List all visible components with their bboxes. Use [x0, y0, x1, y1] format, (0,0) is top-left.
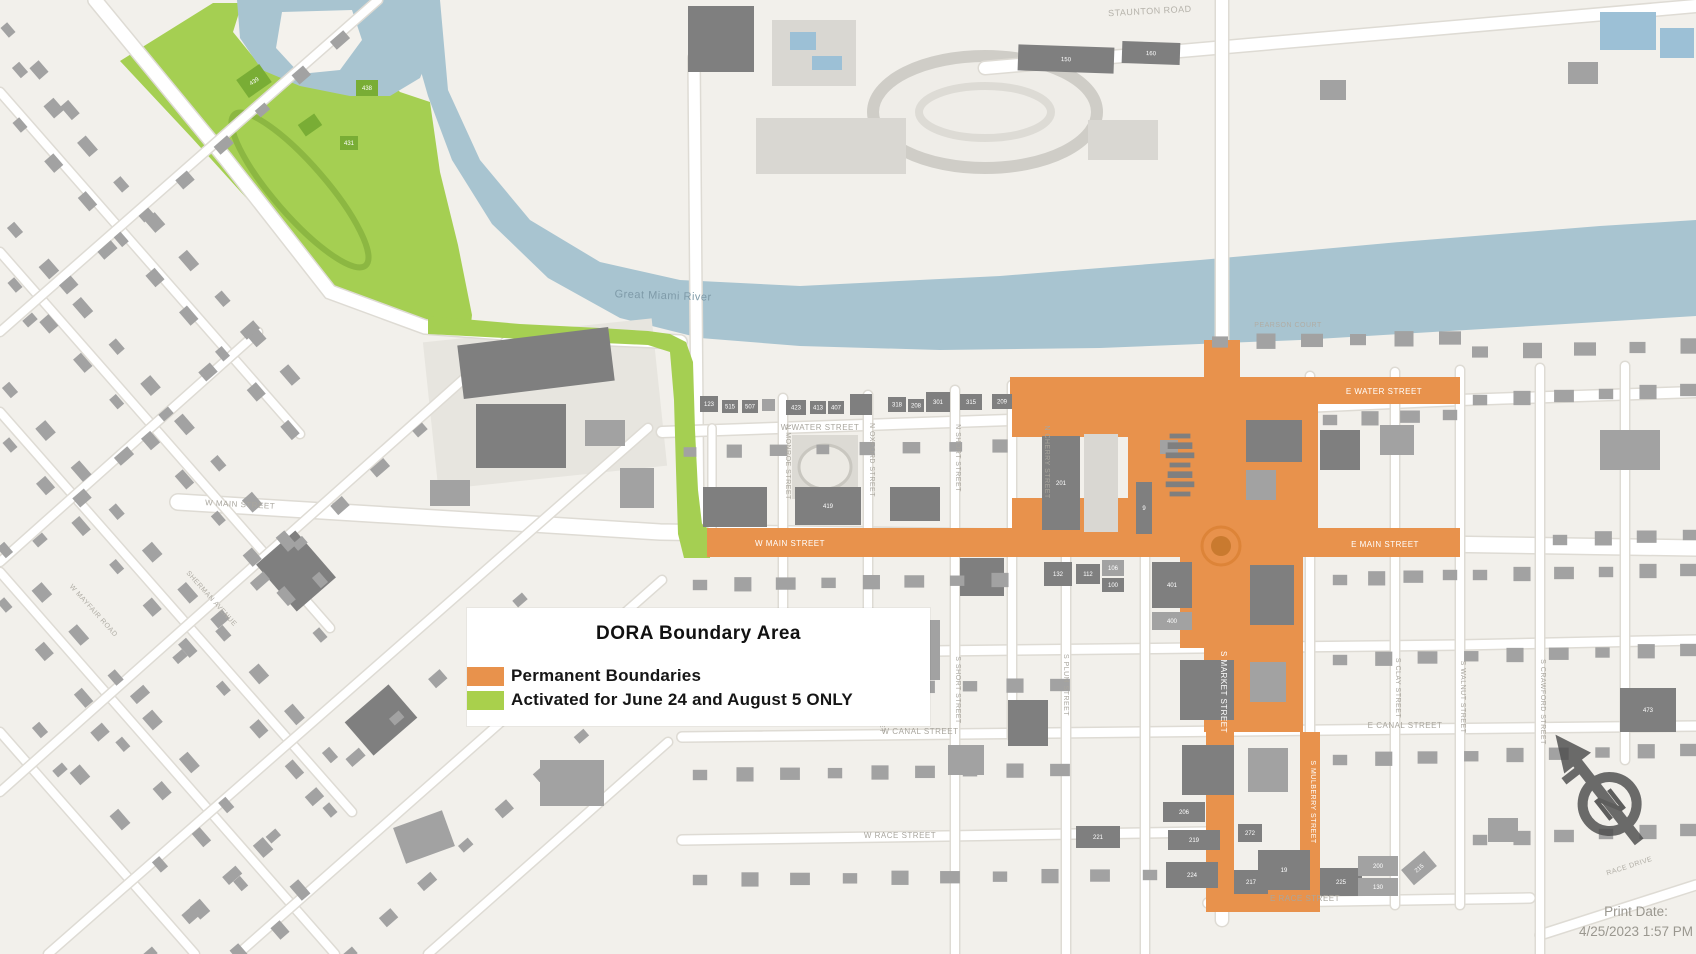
street-label: STAUNTON ROAD: [1108, 4, 1192, 18]
map-building: [113, 176, 129, 193]
map-building: [816, 445, 829, 455]
map-building: [1554, 567, 1574, 579]
map-building: [2, 437, 17, 452]
map-building: [940, 871, 960, 883]
street-label: S WALNUT STREET: [1459, 661, 1466, 734]
map-building: [1250, 662, 1286, 702]
north-arrow: N: [1534, 718, 1660, 858]
map-building: [772, 20, 856, 86]
map-building: [1350, 334, 1366, 345]
map-stage: 1501604394384314191235155074234134073182…: [0, 0, 1696, 954]
map-building: [1506, 748, 1523, 762]
map-building: [963, 681, 977, 691]
building-number-label: 507: [745, 405, 756, 411]
map-building: [780, 768, 800, 780]
map-building: [1553, 535, 1567, 545]
map-building: [476, 404, 566, 468]
map-building: [379, 908, 398, 927]
map-building: [1637, 530, 1657, 542]
map-building: [1638, 644, 1655, 658]
map-building: [871, 765, 888, 779]
map-building: [1600, 430, 1660, 470]
map-building: [216, 681, 231, 696]
street-label: S CLAY STREET: [1394, 658, 1401, 719]
map-building: [991, 573, 1008, 587]
map-building: [1084, 434, 1118, 532]
map-building: [428, 669, 447, 688]
map-building: [776, 577, 796, 589]
building-number-label: 219: [1189, 838, 1200, 844]
map-building: [1681, 338, 1696, 353]
map-road: [0, 572, 335, 954]
map-building: [52, 762, 67, 777]
map-building: [1246, 470, 1276, 500]
map-building: [1630, 342, 1646, 353]
map-building: [1680, 824, 1696, 836]
map-building: [904, 575, 924, 587]
map-building: [1473, 395, 1487, 405]
map-building: [1523, 343, 1542, 358]
map-building: [495, 799, 514, 818]
street-label: S MARKET STREET: [1219, 651, 1228, 733]
map-building: [1443, 410, 1457, 420]
map-building: [1395, 331, 1414, 346]
map-building: [43, 98, 64, 119]
map-building: [890, 487, 940, 521]
map-building: [863, 575, 880, 589]
map-building: [1639, 564, 1656, 578]
print-date-label: Print Date:: [1576, 902, 1696, 922]
map-building: [1680, 644, 1696, 656]
map-building: [32, 722, 48, 739]
map-building: [417, 872, 437, 891]
building-number-label: 301: [933, 400, 944, 406]
map-building: [1574, 342, 1596, 355]
map-building: [115, 737, 130, 752]
map-building: [142, 710, 163, 731]
map-building: [1361, 411, 1378, 425]
map-building: [1568, 62, 1598, 84]
building-number-label: 407: [831, 406, 842, 412]
map-building: [60, 100, 79, 120]
map-building: [1168, 442, 1193, 449]
building-number-label: 413: [813, 406, 824, 412]
map-building: [210, 455, 226, 472]
map-building: [7, 222, 23, 239]
map-building: [72, 297, 93, 319]
map-building: [266, 828, 281, 843]
map-building: [1443, 570, 1457, 580]
map-building: [891, 871, 908, 885]
map-building: [1660, 28, 1694, 58]
map-building: [992, 439, 1007, 452]
map-building: [1182, 745, 1234, 795]
street-label: E RACE STREET: [1270, 894, 1340, 903]
map-building: [1050, 764, 1070, 776]
map-building: [1513, 391, 1530, 405]
map-building: [130, 685, 150, 704]
map-building: [1008, 700, 1048, 746]
street-label: E CANAL STREET: [1368, 721, 1443, 730]
map-building: [1368, 571, 1385, 585]
building-number-label: 272: [1245, 831, 1256, 837]
map-building: [1473, 835, 1487, 845]
map-building: [1006, 678, 1023, 692]
building-number-label: 473: [1643, 708, 1654, 714]
map-building: [756, 118, 906, 174]
street-label: N MONROE STREET: [784, 424, 791, 500]
map-building: [1680, 384, 1696, 396]
building-number-label: 160: [1146, 51, 1157, 57]
map-building: [322, 747, 338, 764]
street-label: E MAIN STREET: [1351, 540, 1419, 549]
map-building: [1006, 763, 1023, 777]
map-building: [850, 394, 872, 415]
map-building: [1301, 334, 1323, 347]
map-building: [0, 597, 13, 612]
map-building: [68, 624, 89, 646]
map-building: [458, 838, 473, 853]
map-building: [109, 503, 125, 520]
map-building: [950, 576, 964, 586]
map-building: [963, 766, 977, 776]
building-number-label: 419: [823, 504, 834, 510]
legend-item-label: Permanent Boundaries: [511, 666, 701, 686]
map-building: [12, 62, 28, 79]
print-date: Print Date: 4/25/2023 1:57 PM: [1576, 902, 1696, 942]
map-building: [345, 684, 418, 755]
street-label: N CHERRY STREET: [1043, 425, 1050, 499]
map-building: [688, 6, 754, 72]
map-building: [35, 420, 56, 441]
map-building: [0, 22, 15, 37]
legend-title: DORA Boundary Area: [467, 623, 930, 645]
map-building: [1599, 567, 1613, 577]
building-number-label: 221: [1093, 835, 1104, 841]
roundabout-center: [1211, 536, 1231, 556]
building-number-label: 132: [1053, 572, 1064, 578]
map-building: [1320, 80, 1346, 100]
building-number-label: 209: [997, 400, 1008, 406]
map-building: [1333, 655, 1347, 665]
building-number-label: 400: [1167, 619, 1178, 625]
map-building: [174, 414, 195, 436]
map-building: [214, 290, 230, 307]
building-number-label: 431: [344, 141, 355, 147]
map-canvas: 1501604394384314191235155074234134073182…: [0, 0, 1696, 954]
map-building: [1170, 463, 1191, 468]
map-building: [142, 542, 163, 563]
building-number-label: 106: [1108, 566, 1119, 572]
map-building: [342, 946, 357, 954]
map-building: [142, 946, 157, 954]
building-number-label: 100: [1108, 583, 1119, 589]
map-building: [1680, 564, 1696, 576]
map-building: [693, 770, 707, 780]
map-building: [1166, 452, 1195, 458]
map-building: [77, 135, 98, 157]
map-building: [430, 480, 470, 506]
map-building: [1599, 389, 1613, 399]
building-number-label: 150: [1061, 57, 1072, 63]
print-date-value: 4/25/2023 1:57 PM: [1576, 922, 1696, 942]
legend-item-label: Activated for June 24 and August 5 ONLY: [511, 690, 853, 710]
map-building: [1513, 831, 1530, 845]
building-number-label: 130: [1373, 885, 1384, 891]
building-number-label: 201: [1056, 481, 1067, 487]
map-building: [1248, 748, 1288, 792]
map-building: [305, 787, 324, 806]
map-building: [29, 60, 48, 79]
map-building: [1513, 567, 1530, 581]
map-building: [1418, 751, 1438, 763]
map-building: [993, 871, 1007, 881]
permanent-boundary-swatch: [467, 667, 504, 686]
map-building: [790, 873, 810, 885]
map-building: [90, 723, 109, 742]
map-building: [1595, 747, 1609, 757]
street-label: S PLUM STREET: [1062, 654, 1069, 716]
map-building: [1506, 648, 1523, 662]
map-building: [1638, 744, 1655, 758]
map-building: [322, 802, 337, 817]
map-building: [540, 760, 604, 806]
map-building: [32, 582, 53, 603]
map-building: [1595, 647, 1609, 657]
street-label: S SHORT STREET: [954, 656, 961, 724]
street-label: W CANAL STREET: [882, 727, 959, 736]
map-building: [727, 445, 742, 458]
building-number-label: 225: [1336, 880, 1347, 886]
map-building: [1683, 530, 1696, 540]
map-building: [110, 809, 131, 831]
map-building: [1639, 385, 1656, 399]
map-building: [1320, 430, 1360, 470]
map-building: [585, 420, 625, 446]
map-building: [1375, 652, 1392, 666]
map-building: [1170, 492, 1191, 497]
legend-box: DORA Boundary Area Permanent Boundaries …: [467, 608, 930, 726]
map-road: [0, 332, 258, 562]
building-number-label: 423: [791, 406, 802, 412]
map-building: [179, 752, 200, 774]
map-building: [574, 729, 589, 744]
map-building: [762, 399, 775, 411]
building-number-label: 515: [725, 405, 736, 411]
map-building: [693, 875, 707, 885]
map-building: [915, 766, 935, 778]
map-building: [1090, 869, 1110, 881]
map-building: [140, 375, 161, 396]
map-building: [1212, 336, 1228, 347]
building-number-label: 19: [1281, 868, 1288, 874]
map-building: [903, 442, 921, 453]
map-building: [812, 56, 842, 70]
map-building: [1549, 648, 1569, 660]
building-number-label: 200: [1373, 864, 1384, 870]
street-label: W WATER STREET: [781, 423, 860, 432]
map-building: [1323, 415, 1337, 425]
legend-item-permanent: Permanent Boundaries: [467, 664, 930, 688]
building-number-label: 318: [892, 403, 903, 409]
map-building: [249, 663, 270, 684]
street-label: N SHORT STREET: [954, 424, 961, 492]
street-label: S CRAWFORD STREET: [1539, 659, 1546, 745]
street-label: E WATER STREET: [1346, 387, 1422, 396]
building-number-label: 123: [704, 402, 715, 408]
street-label: N OXFORD STREET: [868, 423, 875, 497]
permanent-boundary-waterfront-parcels: [1012, 404, 1128, 437]
map-building: [1473, 570, 1487, 580]
map-building: [1439, 331, 1461, 344]
map-building: [1257, 334, 1276, 349]
map-building: [153, 781, 172, 800]
map-building: [1170, 434, 1191, 439]
building-number-label: 438: [362, 86, 373, 92]
building-number-label: 224: [1187, 873, 1198, 879]
building-number-label: 112: [1083, 572, 1093, 578]
map-building: [821, 578, 835, 588]
street-label: W MAIN STREET: [755, 539, 825, 548]
map-building: [109, 338, 125, 355]
map-building: [2, 382, 18, 399]
map-building: [736, 767, 753, 781]
map-building: [1250, 565, 1294, 625]
map-building: [693, 580, 707, 590]
street-label: PEARSON COURT: [1254, 322, 1322, 329]
map-building: [1333, 755, 1347, 765]
map-building: [1403, 570, 1423, 582]
map-building: [1472, 346, 1488, 357]
map-building: [1168, 471, 1193, 478]
map-building: [734, 577, 751, 591]
map-building: [1554, 830, 1574, 842]
map-building: [70, 764, 91, 785]
map-building: [703, 487, 767, 527]
map-building: [109, 559, 124, 574]
activated-boundary-swatch: [467, 691, 504, 710]
map-building: [684, 447, 697, 457]
map-building: [1595, 531, 1612, 545]
map-building: [280, 364, 301, 386]
street-label: S MULBERRY STREET: [1309, 760, 1316, 844]
building-number-label: 208: [911, 404, 922, 410]
street-label: W RACE STREET: [864, 831, 936, 840]
map-building: [1554, 390, 1574, 402]
map-building: [1143, 870, 1157, 880]
street-label: RACE DRIVE: [1606, 856, 1654, 877]
map-building: [1166, 481, 1195, 487]
map-building: [843, 873, 857, 883]
map-building: [345, 748, 365, 767]
map-building: [828, 768, 842, 778]
legend-item-activated: Activated for June 24 and August 5 ONLY: [467, 688, 930, 712]
building-number-label: 401: [1167, 583, 1178, 589]
map-building: [1333, 575, 1347, 585]
map-building: [512, 592, 527, 607]
building-number-label: 217: [1246, 880, 1257, 886]
map-building: [178, 250, 199, 272]
map-building: [35, 642, 54, 661]
map-building: [284, 704, 305, 726]
map-building: [1041, 869, 1058, 883]
map-building: [1680, 744, 1696, 756]
map-building: [393, 810, 455, 863]
building-number-label: 315: [966, 400, 977, 406]
building-number-label: 206: [1179, 810, 1190, 816]
map-building: [741, 872, 758, 886]
map-building: [1375, 752, 1392, 766]
map-building: [1400, 410, 1420, 422]
map-building: [1246, 420, 1302, 462]
map-building: [790, 32, 816, 50]
map-building: [1088, 120, 1158, 160]
map-building: [1418, 651, 1438, 663]
map-building: [1600, 12, 1656, 50]
map-building: [1380, 425, 1414, 455]
map-building: [1464, 751, 1478, 761]
map-building: [620, 468, 654, 508]
